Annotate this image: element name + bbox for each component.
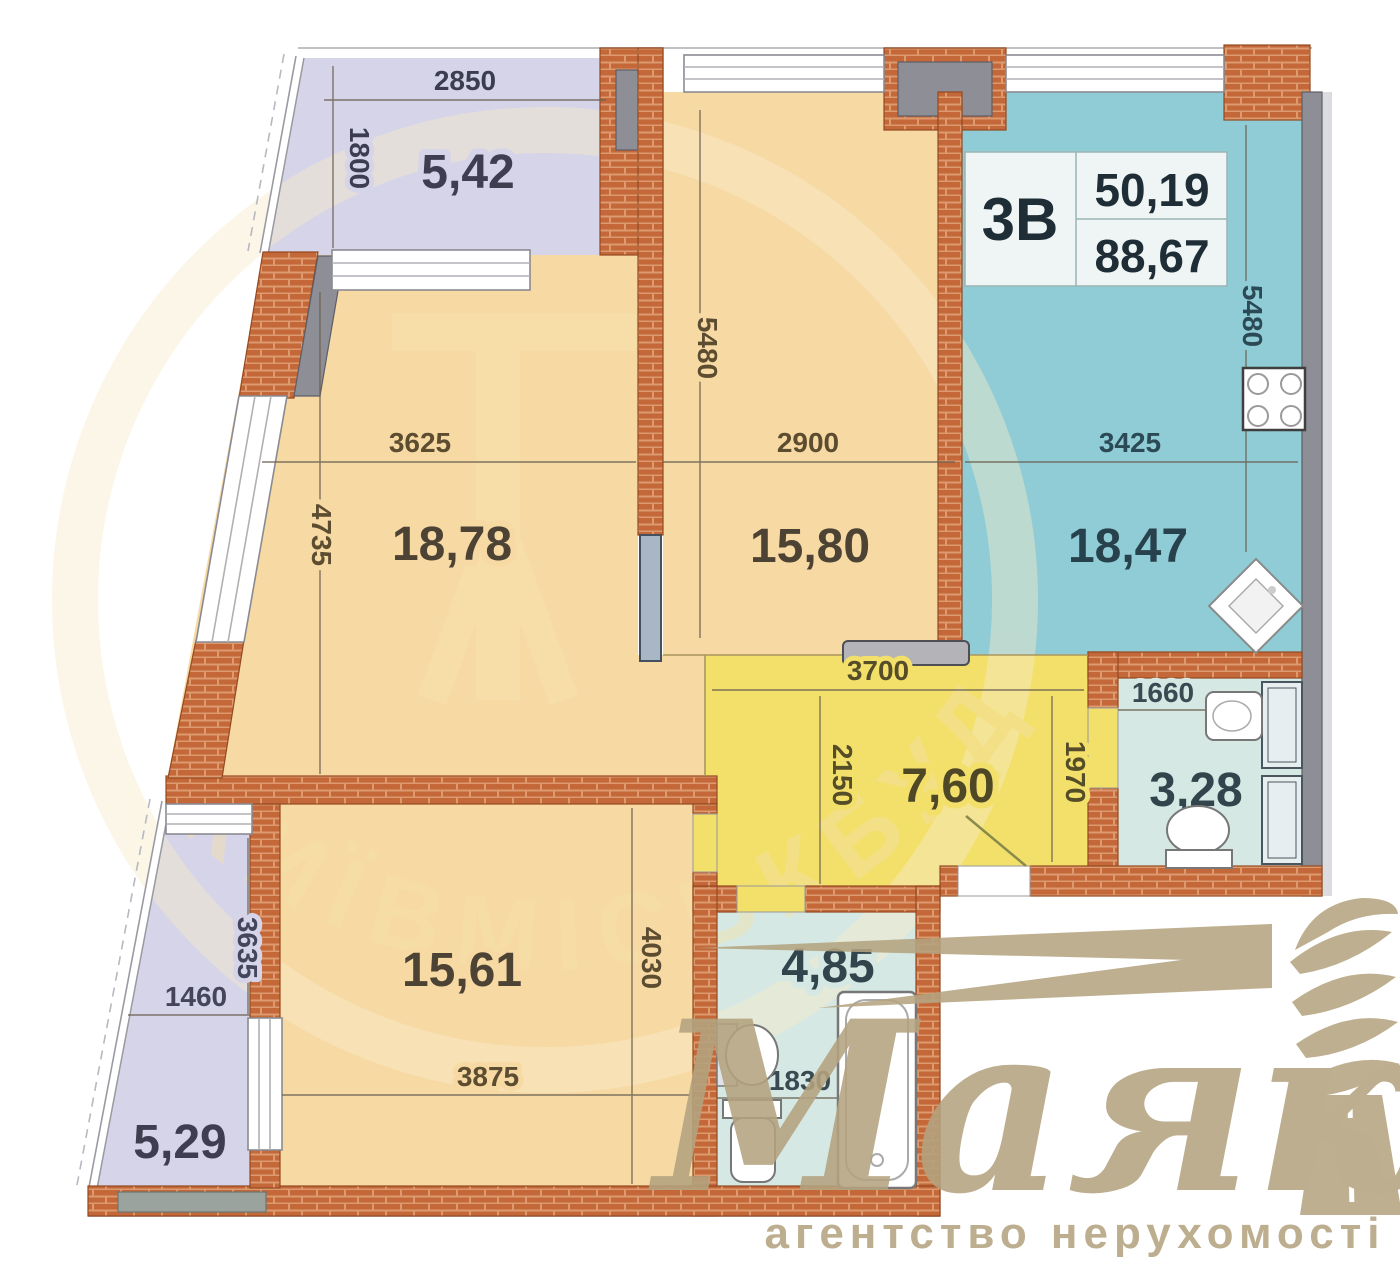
window-bedroom-low-left <box>248 1018 282 1150</box>
window-kitchen-top <box>1006 55 1224 92</box>
area-bedroom-low: 15,61 <box>402 944 522 997</box>
dim-living-w: 3625 <box>389 427 451 458</box>
dim-kitchen-h: 5480 <box>1237 285 1268 347</box>
window-living-balcony <box>332 250 530 290</box>
door-panel-living <box>640 535 661 661</box>
unit-living-area: 50,19 <box>1094 164 1209 216</box>
area-bedroom-mid: 15,80 <box>750 520 870 573</box>
dim-bedroom-mid-h: 5480 <box>692 317 723 379</box>
dim-kitchen-w: 3425 <box>1099 427 1161 458</box>
dim-balcony-low-h: 3635 <box>232 917 263 979</box>
area-living: 18,78 <box>392 518 512 571</box>
entrance-opening <box>958 866 1030 896</box>
unit-total-area: 88,67 <box>1094 230 1209 282</box>
area-balcony-top: 5,42 <box>421 146 514 199</box>
unit-type-label: 3В <box>982 186 1059 253</box>
window-balcony-low-top <box>166 804 252 834</box>
floor-plan-page: КИЇВМІСЬКБУД <box>0 0 1400 1285</box>
wc-toilet-icon <box>1166 806 1232 868</box>
dim-wc-w: 1660 <box>1132 677 1194 708</box>
unit-info-box: 3В 50,19 88,67 <box>965 152 1227 286</box>
dim-living-h: 4735 <box>306 504 337 566</box>
area-hall: 7,60 <box>901 760 994 813</box>
dim-balcony-low-w: 1460 <box>165 981 227 1012</box>
dim-hall-h-right: 1970 <box>1060 741 1091 803</box>
dim-bedroom-mid-w: 2900 <box>777 427 839 458</box>
door-gap-bedroom-low <box>693 814 717 872</box>
dim-balcony-top-h: 1800 <box>344 127 375 189</box>
concrete-wall <box>1302 92 1322 896</box>
area-kitchen: 18,47 <box>1068 520 1188 573</box>
door-gap-bath <box>737 886 805 912</box>
dim-hall-h-left: 2150 <box>827 744 858 806</box>
area-balcony-low: 5,29 <box>133 1116 226 1169</box>
dim-balcony-top-w: 2850 <box>434 65 496 96</box>
brand-tagline: агентство нерухомості <box>765 1209 1386 1258</box>
wc-sink-icon <box>1206 692 1262 740</box>
door-gap-wc <box>1088 708 1118 788</box>
dim-bedroom-low-w: 3875 <box>457 1061 519 1092</box>
brand-wordmark: Маяк <box>648 970 1400 1246</box>
window-bedroom-mid-top <box>684 55 884 92</box>
dim-hall-w: 3700 <box>847 655 909 686</box>
floor-plan-canvas: КИЇВМІСЬКБУД <box>0 0 1400 1285</box>
stove-icon <box>1243 368 1305 430</box>
